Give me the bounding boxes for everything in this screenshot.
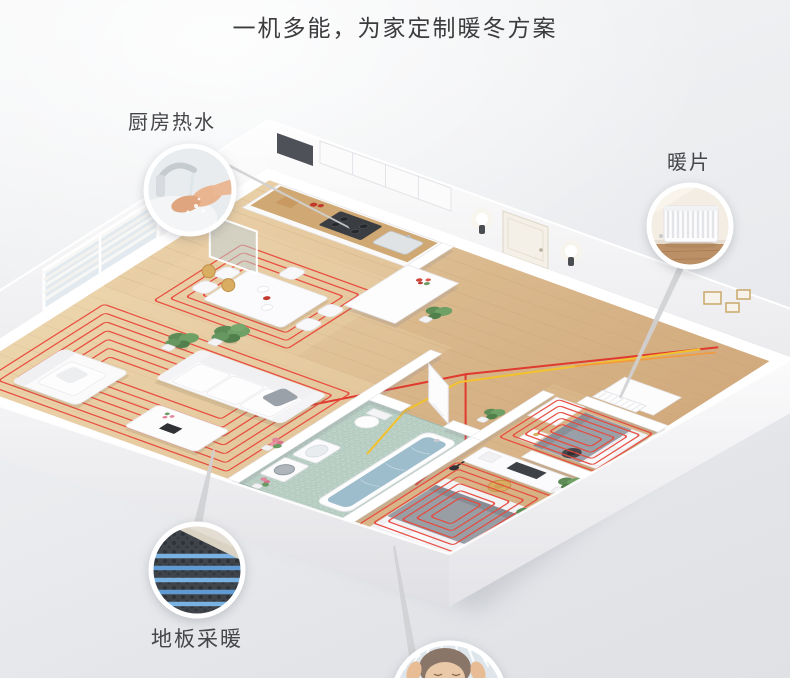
- callout-label-kitchen-hot-water: 厨房热水: [128, 106, 216, 135]
- page-title: 一机多能，为家定制暖冬方案: [0, 9, 790, 43]
- poster: 一机多能，为家定制暖冬方案 厨房热水 暖片 地板采暖: [0, 0, 790, 678]
- callout-photo-radiator: [649, 185, 731, 269]
- callout-label-floor-heating: 地板采暖: [151, 623, 243, 653]
- callout-label-radiator: 暖片: [667, 146, 711, 175]
- radiator-icon: [659, 206, 718, 242]
- apartment-illustration: [0, 0, 790, 678]
